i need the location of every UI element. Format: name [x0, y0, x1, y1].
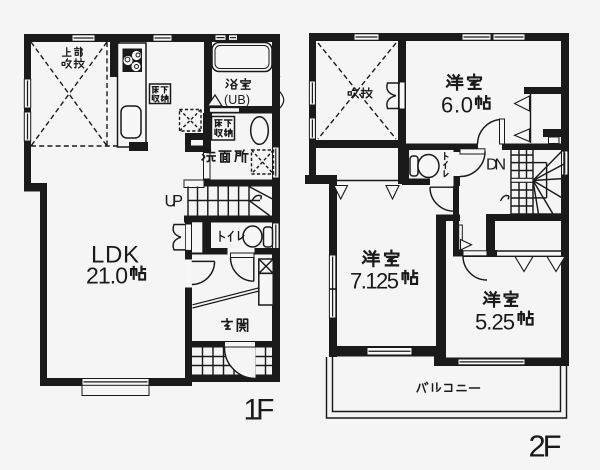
svg-text:UP: UP	[165, 193, 186, 211]
svg-text:DN: DN	[486, 156, 507, 173]
svg-text:7.125: 7.125	[350, 269, 399, 294]
svg-text:2F: 2F	[529, 429, 563, 464]
svg-text:(UB): (UB)	[224, 93, 250, 107]
svg-text:1F: 1F	[244, 394, 276, 427]
svg-text:5.25: 5.25	[475, 310, 515, 335]
svg-text:6.0: 6.0	[441, 93, 473, 118]
svg-text:21.0: 21.0	[86, 263, 128, 289]
